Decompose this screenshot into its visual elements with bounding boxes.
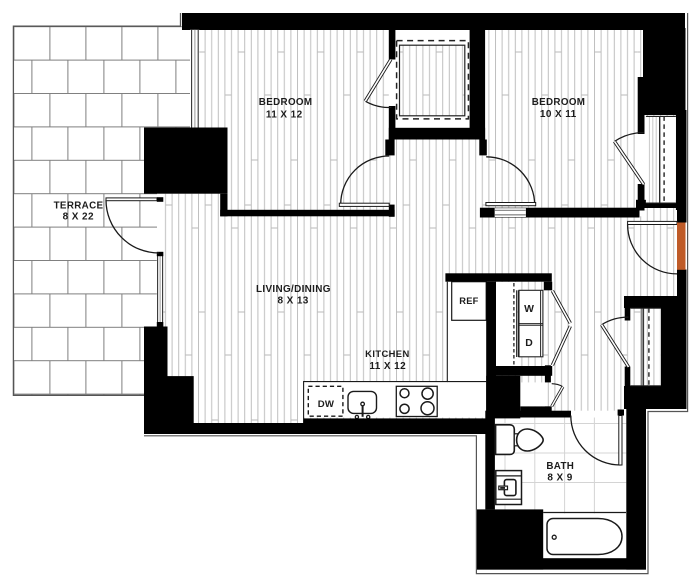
svg-text:BATH: BATH	[546, 461, 574, 472]
svg-text:11 X 12: 11 X 12	[266, 109, 303, 120]
svg-text:REF: REF	[459, 296, 478, 306]
svg-text:KITCHEN: KITCHEN	[365, 348, 409, 359]
svg-text:8 X 9: 8 X 9	[547, 473, 572, 484]
svg-text:10 X 11: 10 X 11	[540, 109, 577, 120]
svg-text:BEDROOM: BEDROOM	[532, 97, 586, 108]
svg-text:TERRACE: TERRACE	[54, 200, 104, 211]
svg-text:W: W	[524, 304, 534, 315]
svg-text:LIVING/DINING: LIVING/DINING	[256, 284, 331, 295]
svg-text:BEDROOM: BEDROOM	[259, 97, 313, 108]
svg-text:DW: DW	[318, 399, 335, 410]
svg-text:8 X 13: 8 X 13	[277, 296, 308, 307]
svg-text:8 X 22: 8 X 22	[63, 212, 94, 223]
svg-text:11 X 12: 11 X 12	[369, 361, 406, 372]
svg-text:D: D	[525, 338, 533, 349]
